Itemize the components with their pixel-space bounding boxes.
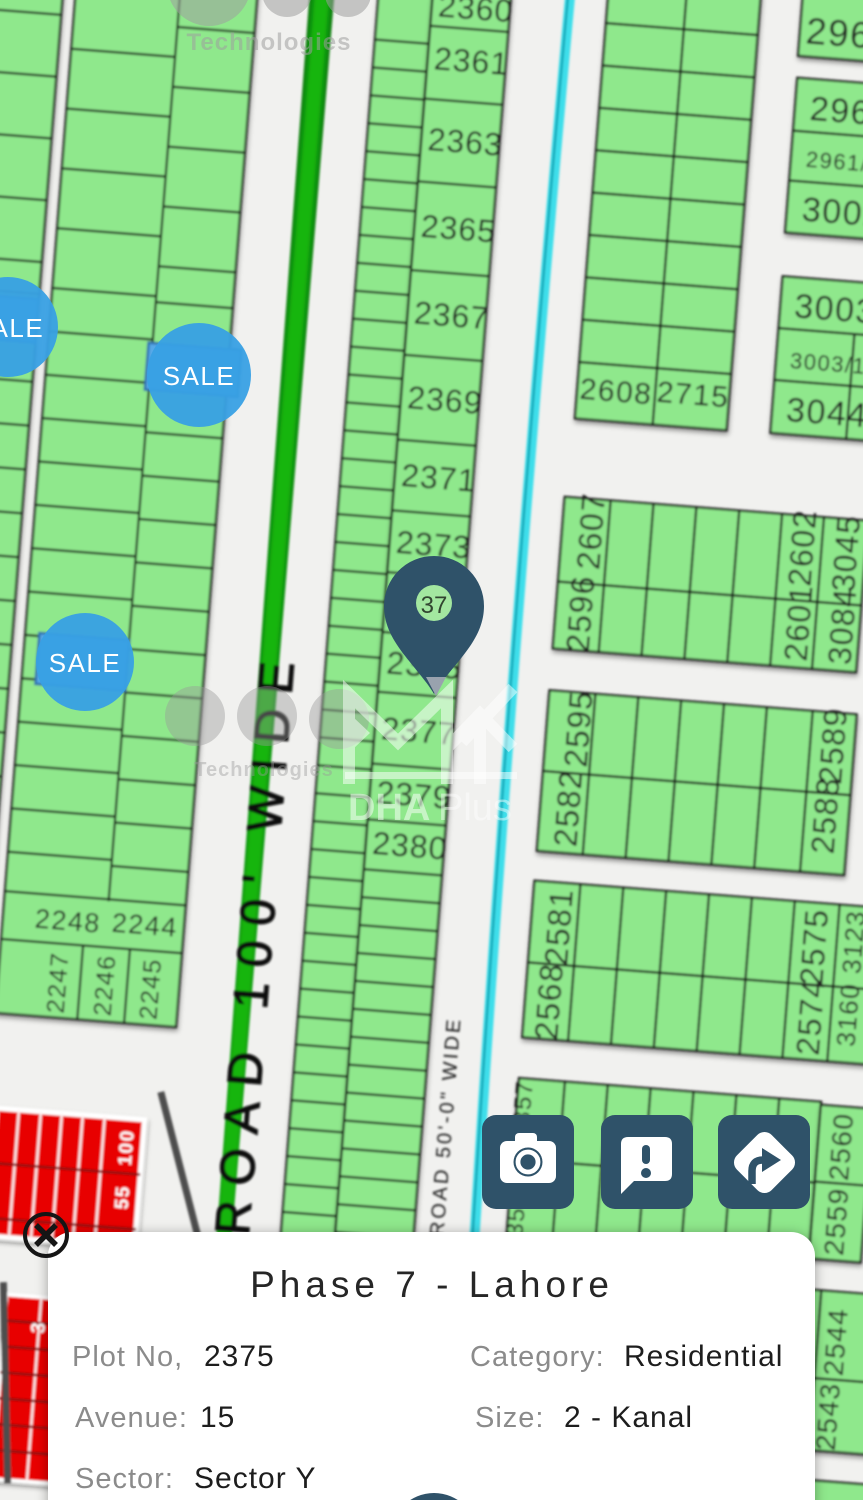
svg-text:2544: 2544 (818, 1306, 854, 1377)
svg-text:3044: 3044 (785, 391, 863, 435)
svg-text:2559: 2559 (818, 1186, 854, 1257)
svg-text:Technologies: Technologies (187, 29, 352, 56)
svg-text:Plot No,: Plot No, (72, 1341, 183, 1373)
svg-text:SALE: SALE (0, 313, 44, 343)
svg-text:SALE: SALE (163, 361, 236, 391)
svg-text:2595: 2595 (558, 689, 600, 769)
svg-text:2248: 2248 (34, 904, 102, 939)
svg-text:2568: 2568 (528, 961, 570, 1041)
svg-text:2960: 2960 (804, 10, 863, 58)
svg-text:2574: 2574 (790, 977, 832, 1057)
svg-text:2247: 2247 (42, 951, 75, 1015)
svg-text:Category:: Category: (470, 1341, 605, 1373)
svg-text:2560: 2560 (823, 1111, 859, 1182)
svg-text:2607: 2607 (570, 491, 612, 571)
svg-text:3160: 3160 (831, 982, 863, 1048)
svg-text:37: 37 (421, 592, 448, 619)
svg-text:2575: 2575 (793, 907, 835, 987)
svg-text:2715: 2715 (656, 376, 731, 415)
svg-text:3003: 3003 (793, 287, 863, 331)
svg-text:3084: 3084 (822, 586, 863, 666)
svg-text:DHA: DHA (348, 787, 430, 829)
svg-text:2365: 2365 (420, 208, 498, 250)
svg-text:3045: 3045 (825, 513, 863, 593)
svg-text:2245: 2245 (135, 957, 168, 1021)
svg-text:2244: 2244 (111, 908, 179, 943)
svg-text:Residential: Residential (624, 1340, 783, 1373)
svg-text:2588: 2588 (805, 775, 847, 855)
svg-text:2582: 2582 (547, 768, 589, 848)
svg-text:Avenue:: Avenue: (75, 1402, 188, 1434)
svg-text:3: 3 (28, 1320, 51, 1334)
svg-text:Plus: Plus (438, 787, 512, 829)
svg-text:2369: 2369 (406, 379, 484, 421)
svg-text:100: 100 (115, 1129, 139, 1167)
svg-text:Sector Y: Sector Y (194, 1462, 317, 1495)
svg-text:2608: 2608 (579, 373, 654, 412)
svg-text:2596: 2596 (560, 574, 602, 654)
svg-text:Sector:: Sector: (75, 1463, 174, 1495)
svg-text:3123: 3123 (836, 909, 863, 975)
svg-text:Technologies: Technologies (194, 759, 333, 781)
svg-text:2581: 2581 (538, 887, 580, 967)
svg-text:SALE: SALE (49, 648, 122, 678)
svg-text:2 - Kanal: 2 - Kanal (564, 1401, 693, 1434)
svg-text:2375: 2375 (204, 1340, 275, 1373)
svg-text:2602: 2602 (782, 508, 824, 588)
svg-text:Phase 7 - Lahore: Phase 7 - Lahore (250, 1264, 614, 1305)
svg-text:2543: 2543 (810, 1381, 846, 1452)
svg-text:2380: 2380 (371, 825, 449, 867)
svg-text:Size:: Size: (475, 1402, 544, 1434)
svg-text:2961: 2961 (808, 90, 863, 134)
svg-text:2363: 2363 (426, 121, 504, 163)
svg-text:3002: 3002 (801, 191, 863, 235)
svg-text:2589: 2589 (812, 706, 854, 786)
svg-text:15: 15 (200, 1401, 235, 1434)
svg-text:2361: 2361 (433, 40, 511, 82)
svg-text:2601: 2601 (778, 583, 820, 663)
svg-text:55: 55 (112, 1184, 135, 1210)
svg-text:2371: 2371 (400, 457, 478, 499)
svg-text:2367: 2367 (413, 295, 491, 337)
svg-text:2246: 2246 (89, 953, 122, 1017)
